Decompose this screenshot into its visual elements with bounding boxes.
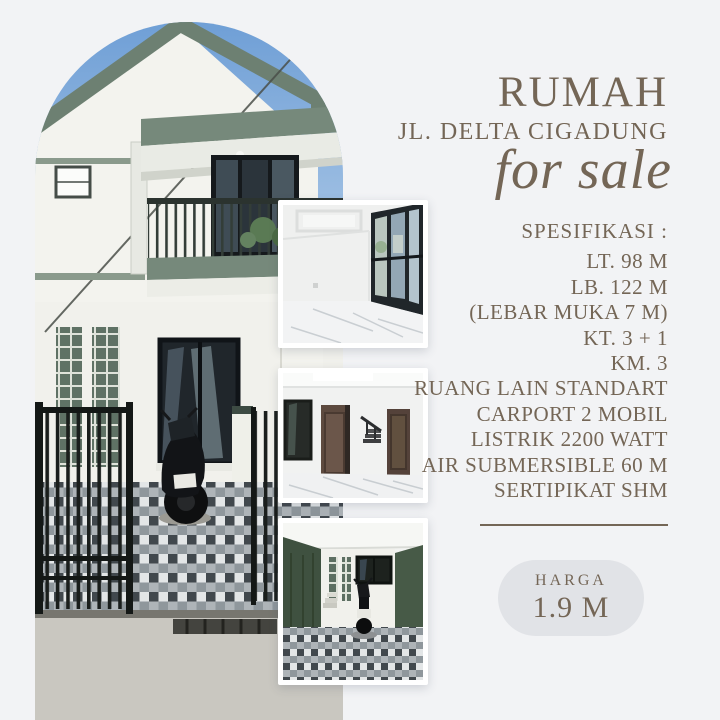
spec-line-lb: LB. 122 M xyxy=(414,275,668,300)
spec-line-ruang-lain: RUANG LAIN STANDART xyxy=(414,376,668,401)
spec-line-sertipikat: SERTIPIKAT SHM xyxy=(414,478,668,503)
spec-line-km: KM. 3 xyxy=(414,351,668,376)
spec-line-carport: CARPORT 2 MOBIL xyxy=(414,402,668,427)
price-label: HARGA xyxy=(535,572,607,590)
spec-line-air: AIR SUBMERSIBLE 60 M xyxy=(414,453,668,478)
spec-line-listrik: LISTRIK 2200 WATT xyxy=(414,427,668,452)
property-flyer: RUMAH JL. DELTA CIGADUNG for sale SPESIF… xyxy=(0,0,720,720)
listing-details: RUMAH JL. DELTA CIGADUNG for sale SPESIF… xyxy=(328,70,668,636)
specs-heading: SPESIFIKASI : xyxy=(521,219,668,244)
divider-line xyxy=(480,524,668,526)
spec-line-kt: KT. 3 + 1 xyxy=(414,326,668,351)
price-badge: HARGA 1.9 M xyxy=(498,560,644,636)
listing-title: RUMAH xyxy=(498,70,668,115)
price-value: 1.9 M xyxy=(533,591,610,625)
for-sale-script: for sale xyxy=(494,144,672,197)
spec-line-lebar-muka: (LEBAR MUKA 7 M) xyxy=(414,300,668,325)
spec-list: LT. 98 M LB. 122 M (LEBAR MUKA 7 M) KT. … xyxy=(414,249,668,503)
spec-line-lt: LT. 98 M xyxy=(414,249,668,274)
